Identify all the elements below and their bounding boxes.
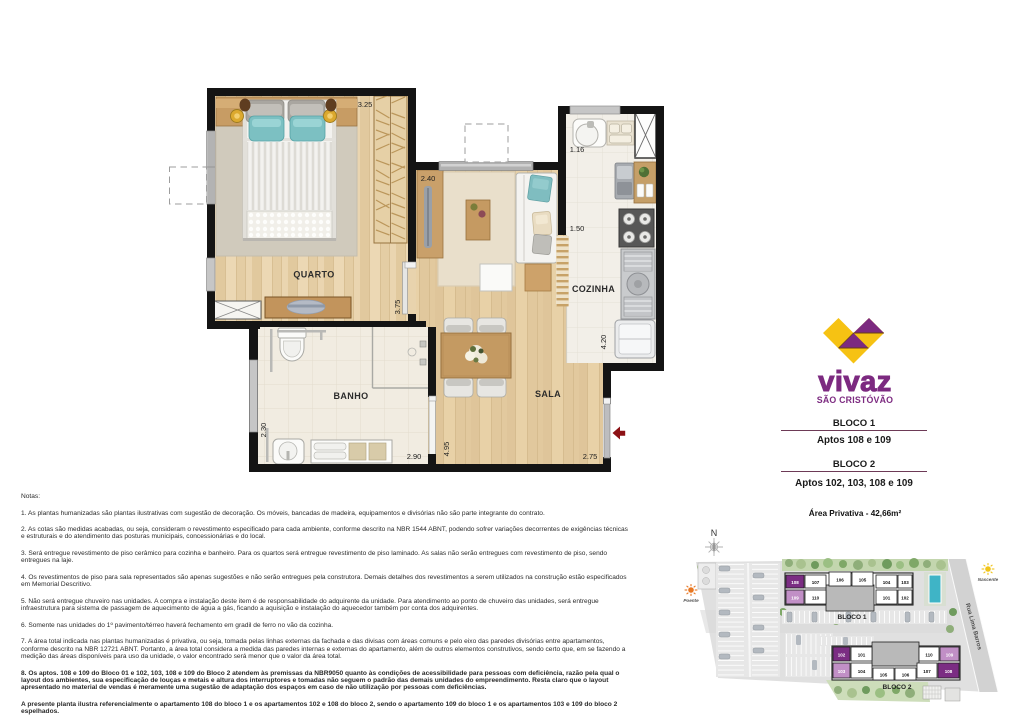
svg-text:101: 101 xyxy=(883,595,891,600)
svg-text:BANHO: BANHO xyxy=(334,391,369,401)
svg-text:4.95: 4.95 xyxy=(442,442,451,457)
svg-text:N: N xyxy=(711,528,718,538)
svg-text:Poente: Poente xyxy=(683,598,699,603)
svg-text:109: 109 xyxy=(791,595,799,600)
svg-text:2.30: 2.30 xyxy=(259,423,268,438)
svg-text:BLOCO 1: BLOCO 1 xyxy=(838,614,867,621)
svg-text:105: 105 xyxy=(880,672,888,677)
svg-text:Nascente: Nascente xyxy=(978,577,999,582)
svg-text:103: 103 xyxy=(838,669,846,674)
svg-text:110: 110 xyxy=(812,595,820,600)
svg-text:103: 103 xyxy=(901,580,909,585)
svg-text:2.40: 2.40 xyxy=(421,174,436,183)
svg-text:108: 108 xyxy=(945,669,953,674)
svg-text:105: 105 xyxy=(859,577,867,582)
svg-text:3.75: 3.75 xyxy=(393,300,402,315)
svg-text:107: 107 xyxy=(923,669,931,674)
svg-text:1.50: 1.50 xyxy=(570,224,585,233)
svg-text:SALA: SALA xyxy=(535,389,561,399)
svg-text:107: 107 xyxy=(812,580,820,585)
svg-text:BLOCO 2: BLOCO 2 xyxy=(883,684,912,691)
svg-text:102: 102 xyxy=(901,595,909,600)
svg-text:106: 106 xyxy=(902,672,910,677)
svg-text:108: 108 xyxy=(791,580,799,585)
svg-text:QUARTO: QUARTO xyxy=(293,270,334,280)
svg-text:104: 104 xyxy=(883,580,891,585)
svg-text:2.90: 2.90 xyxy=(407,452,422,461)
svg-text:106: 106 xyxy=(836,577,844,582)
svg-text:101: 101 xyxy=(858,652,866,657)
svg-text:102: 102 xyxy=(838,652,846,657)
svg-text:104: 104 xyxy=(858,669,866,674)
svg-text:109: 109 xyxy=(946,652,954,657)
svg-text:COZINHA: COZINHA xyxy=(572,284,615,294)
svg-text:3.25: 3.25 xyxy=(358,100,373,109)
svg-text:110: 110 xyxy=(925,652,933,657)
svg-text:1.16: 1.16 xyxy=(570,145,585,154)
svg-text:2.75: 2.75 xyxy=(583,452,598,461)
svg-text:4.20: 4.20 xyxy=(599,335,608,350)
